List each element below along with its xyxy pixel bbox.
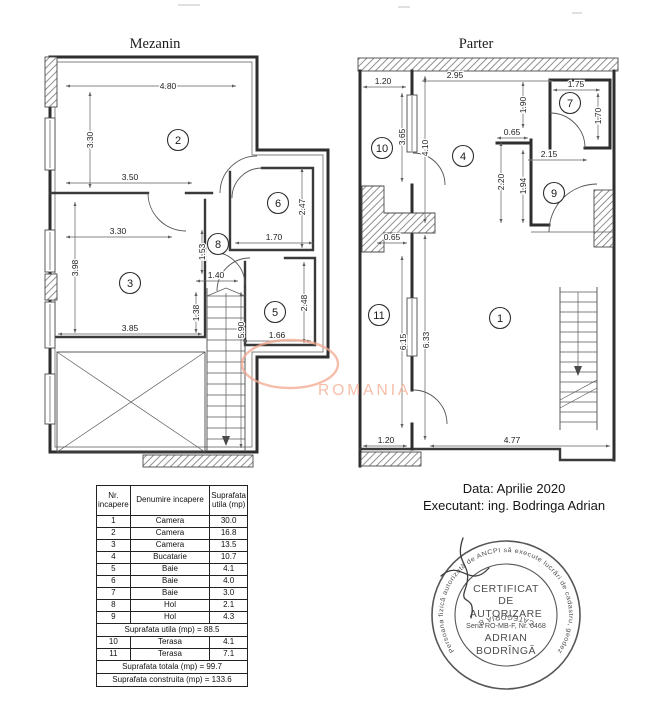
romania-watermark: ROMANIA xyxy=(242,340,411,399)
table-cell: 30.0 xyxy=(210,516,248,528)
table-cell: Bucatarie xyxy=(130,552,210,564)
authorization-stamp: Persoana fizică autorizată de ANCPI să e… xyxy=(425,532,587,694)
room-number-badge: 2 xyxy=(168,130,189,151)
stamp-line-seria: Seria RO-MB-F, Nr. 0468 xyxy=(466,621,546,630)
dimension-label: 1.53 xyxy=(197,243,207,260)
dimension-label: 3.85 xyxy=(122,323,139,333)
dimension-label: 2.20 xyxy=(496,173,506,190)
table-cell: Baie xyxy=(130,588,210,600)
stairs-direction-arrow xyxy=(574,366,582,376)
table-cell: Baie xyxy=(130,564,210,576)
svg-text:8: 8 xyxy=(215,239,221,251)
areas-table: Nr. incapere Denumire incapere Suprafata… xyxy=(96,485,248,687)
table-cell: 10 xyxy=(97,637,131,649)
areas-table-body: 1Camera30.02Camera16.83Camera13.54Bucata… xyxy=(97,516,248,687)
table-cell: 9 xyxy=(97,612,131,624)
dimension-label: 2.48 xyxy=(299,294,309,311)
subtotal-row: Suprafata utila (mp) = 88.5 xyxy=(97,624,248,637)
stamp-line-adrian: ADRIAN xyxy=(485,632,528,644)
table-header-row: Nr. incapere Denumire incapere Suprafata… xyxy=(97,486,248,516)
parter-outer-walls xyxy=(358,58,618,466)
scan-artifacts xyxy=(178,5,582,13)
dimension-label: 4.77 xyxy=(504,435,521,445)
table-cell: 2.1 xyxy=(210,600,248,612)
table-cell: 7 xyxy=(97,588,131,600)
svg-text:9: 9 xyxy=(551,188,557,200)
dimension-label: 2.47 xyxy=(297,198,307,215)
dimension-label: 2.95 xyxy=(447,70,464,80)
room-number-badge: 4 xyxy=(453,146,474,167)
table-row: 5Baie4.1 xyxy=(97,564,248,576)
mezanin-void-cross xyxy=(57,352,205,452)
footer-block: Data: Aprilie 2020 Executant: ing. Bodri… xyxy=(398,481,630,515)
room-number-badge: 3 xyxy=(120,273,141,294)
table-cell: 4.1 xyxy=(210,564,248,576)
parter-floor-plan: 1.202.951.751.901.703.654.100.652.152.20… xyxy=(358,58,618,466)
svg-text:7: 7 xyxy=(567,98,573,110)
table-cell: 7.1 xyxy=(210,649,248,661)
mezanin-outer-walls xyxy=(50,57,328,452)
table-row: 7Baie3.0 xyxy=(97,588,248,600)
dimension-label: 2.15 xyxy=(541,149,558,159)
table-cell: 4.3 xyxy=(210,612,248,624)
table-cell: 16.8 xyxy=(210,528,248,540)
mezanin-title: Mezanin xyxy=(130,36,181,52)
table-cell: 3 xyxy=(97,540,131,552)
signature-squiggle xyxy=(441,538,489,618)
table-row: 6Baie4.0 xyxy=(97,576,248,588)
svg-text:1: 1 xyxy=(497,313,503,325)
subtotal-row-cell: Suprafata utila (mp) = 88.5 xyxy=(97,624,248,637)
stairs-direction-arrow xyxy=(222,436,230,446)
dimension-label: 6.15 xyxy=(398,333,408,350)
table-row: 9Hol4.3 xyxy=(97,612,248,624)
svg-text:4: 4 xyxy=(460,151,466,163)
svg-text:3: 3 xyxy=(127,278,133,290)
table-row: 1Camera30.0 xyxy=(97,516,248,528)
mezanin-floor-plan: 4.803.303.503.303.981.531.401.383.852.47… xyxy=(45,57,328,467)
table-cell: 1 xyxy=(97,516,131,528)
dimension-label: 3.50 xyxy=(122,172,139,182)
room-number-badge: 6 xyxy=(268,193,289,214)
svg-text:11: 11 xyxy=(373,310,384,322)
dimension-label: 3.98 xyxy=(70,259,80,276)
table-row: 11Terasa7.1 xyxy=(97,649,248,661)
dimension-label: 1.90 xyxy=(518,96,528,113)
room-number-badge: 8 xyxy=(208,234,229,255)
dimension-label: 1.38 xyxy=(191,304,201,321)
header-nr-incapere: Nr. incapere xyxy=(97,486,131,516)
floor-plans-drawing: Mezanin Parter xyxy=(0,0,650,478)
parter-h-column xyxy=(362,186,435,252)
mezanin-windows xyxy=(45,118,55,424)
table-cell: 2 xyxy=(97,528,131,540)
header-denumire: Denumire incapere xyxy=(130,486,210,516)
table-cell: 4 xyxy=(97,552,131,564)
table-cell: 6 xyxy=(97,576,131,588)
date-line: Data: Aprilie 2020 xyxy=(398,481,630,496)
dimension-label: 0.65 xyxy=(384,232,401,242)
dimension-label: 5.90 xyxy=(236,321,246,338)
mezanin-stairs xyxy=(207,288,245,452)
dimension-label: 3.65 xyxy=(397,128,407,145)
room-number-badge: 7 xyxy=(560,93,581,114)
dimension-label: 1.70 xyxy=(593,107,603,124)
table-cell: 11 xyxy=(97,649,131,661)
room-number-badge: 9 xyxy=(544,183,565,204)
table-cell: Camera xyxy=(130,540,210,552)
table-cell: 4.1 xyxy=(210,637,248,649)
dimension-label: 0.65 xyxy=(504,127,521,137)
table-row: 10Terasa4.1 xyxy=(97,637,248,649)
dimension-label: 1.70 xyxy=(266,232,283,242)
room-number-badge: 1 xyxy=(490,308,511,329)
dimension-label: 4.80 xyxy=(160,81,177,91)
header-suprafata: Suprafata utila (mp) xyxy=(210,486,248,516)
dimension-label: 3.30 xyxy=(110,226,127,236)
parter-stairs xyxy=(560,287,597,430)
table-cell: Baie xyxy=(130,576,210,588)
table-row: 3Camera13.5 xyxy=(97,540,248,552)
stamp-line-de: DE xyxy=(498,595,514,607)
watermark-text: ROMANIA xyxy=(318,382,411,399)
table-cell: 13.5 xyxy=(210,540,248,552)
dimension-label: 1.20 xyxy=(378,435,395,445)
table-cell: Hol xyxy=(130,612,210,624)
room-number-badge: 10 xyxy=(372,138,393,159)
table-row: 2Camera16.8 xyxy=(97,528,248,540)
built-area-row-cell: Suprafata construita (mp) = 133.6 xyxy=(97,674,248,687)
table-cell: 10.7 xyxy=(210,552,248,564)
table-cell: 5 xyxy=(97,564,131,576)
scanned-floorplan-document: Mezanin Parter xyxy=(0,0,650,720)
table-row: 8Hol2.1 xyxy=(97,600,248,612)
dimension-label: 1.66 xyxy=(269,330,286,340)
table-cell: 8 xyxy=(97,600,131,612)
stamp-line-bodringa: BODRÎNGĂ xyxy=(476,644,536,657)
dimension-label: 4.10 xyxy=(420,139,430,156)
table-cell: 3.0 xyxy=(210,588,248,600)
dimension-label: 6.33 xyxy=(421,331,431,348)
dimension-label: 1.20 xyxy=(375,76,392,86)
stamp-line-certificat: CERTIFICAT xyxy=(473,583,539,595)
parter-title: Parter xyxy=(459,36,494,52)
table-cell: Camera xyxy=(130,516,210,528)
svg-text:6: 6 xyxy=(275,198,281,210)
total-row: Suprafata totala (mp) = 99.7 xyxy=(97,661,248,674)
table-row: 4Bucatarie10.7 xyxy=(97,552,248,564)
svg-text:10: 10 xyxy=(376,143,388,155)
dimension-label: 3.30 xyxy=(85,131,95,148)
dimension-label: 1.94 xyxy=(518,177,528,194)
table-cell: 4.0 xyxy=(210,576,248,588)
total-row-cell: Suprafata totala (mp) = 99.7 xyxy=(97,661,248,674)
room-number-badge: 11 xyxy=(369,305,390,326)
table-cell: Terasa xyxy=(130,649,210,661)
built-area-row: Suprafata construita (mp) = 133.6 xyxy=(97,674,248,687)
svg-text:5: 5 xyxy=(272,307,278,319)
executant-line: Executant: ing. Bodringa Adrian xyxy=(398,498,630,513)
room-number-badge: 5 xyxy=(265,302,286,323)
table-cell: Camera xyxy=(130,528,210,540)
table-cell: Terasa xyxy=(130,637,210,649)
table-cell: Hol xyxy=(130,600,210,612)
dimension-label: 1.75 xyxy=(568,79,585,89)
stamp-line-autorizare: AUTORIZARE xyxy=(470,608,542,620)
dimension-label: 1.40 xyxy=(208,270,225,280)
svg-text:2: 2 xyxy=(175,135,181,147)
